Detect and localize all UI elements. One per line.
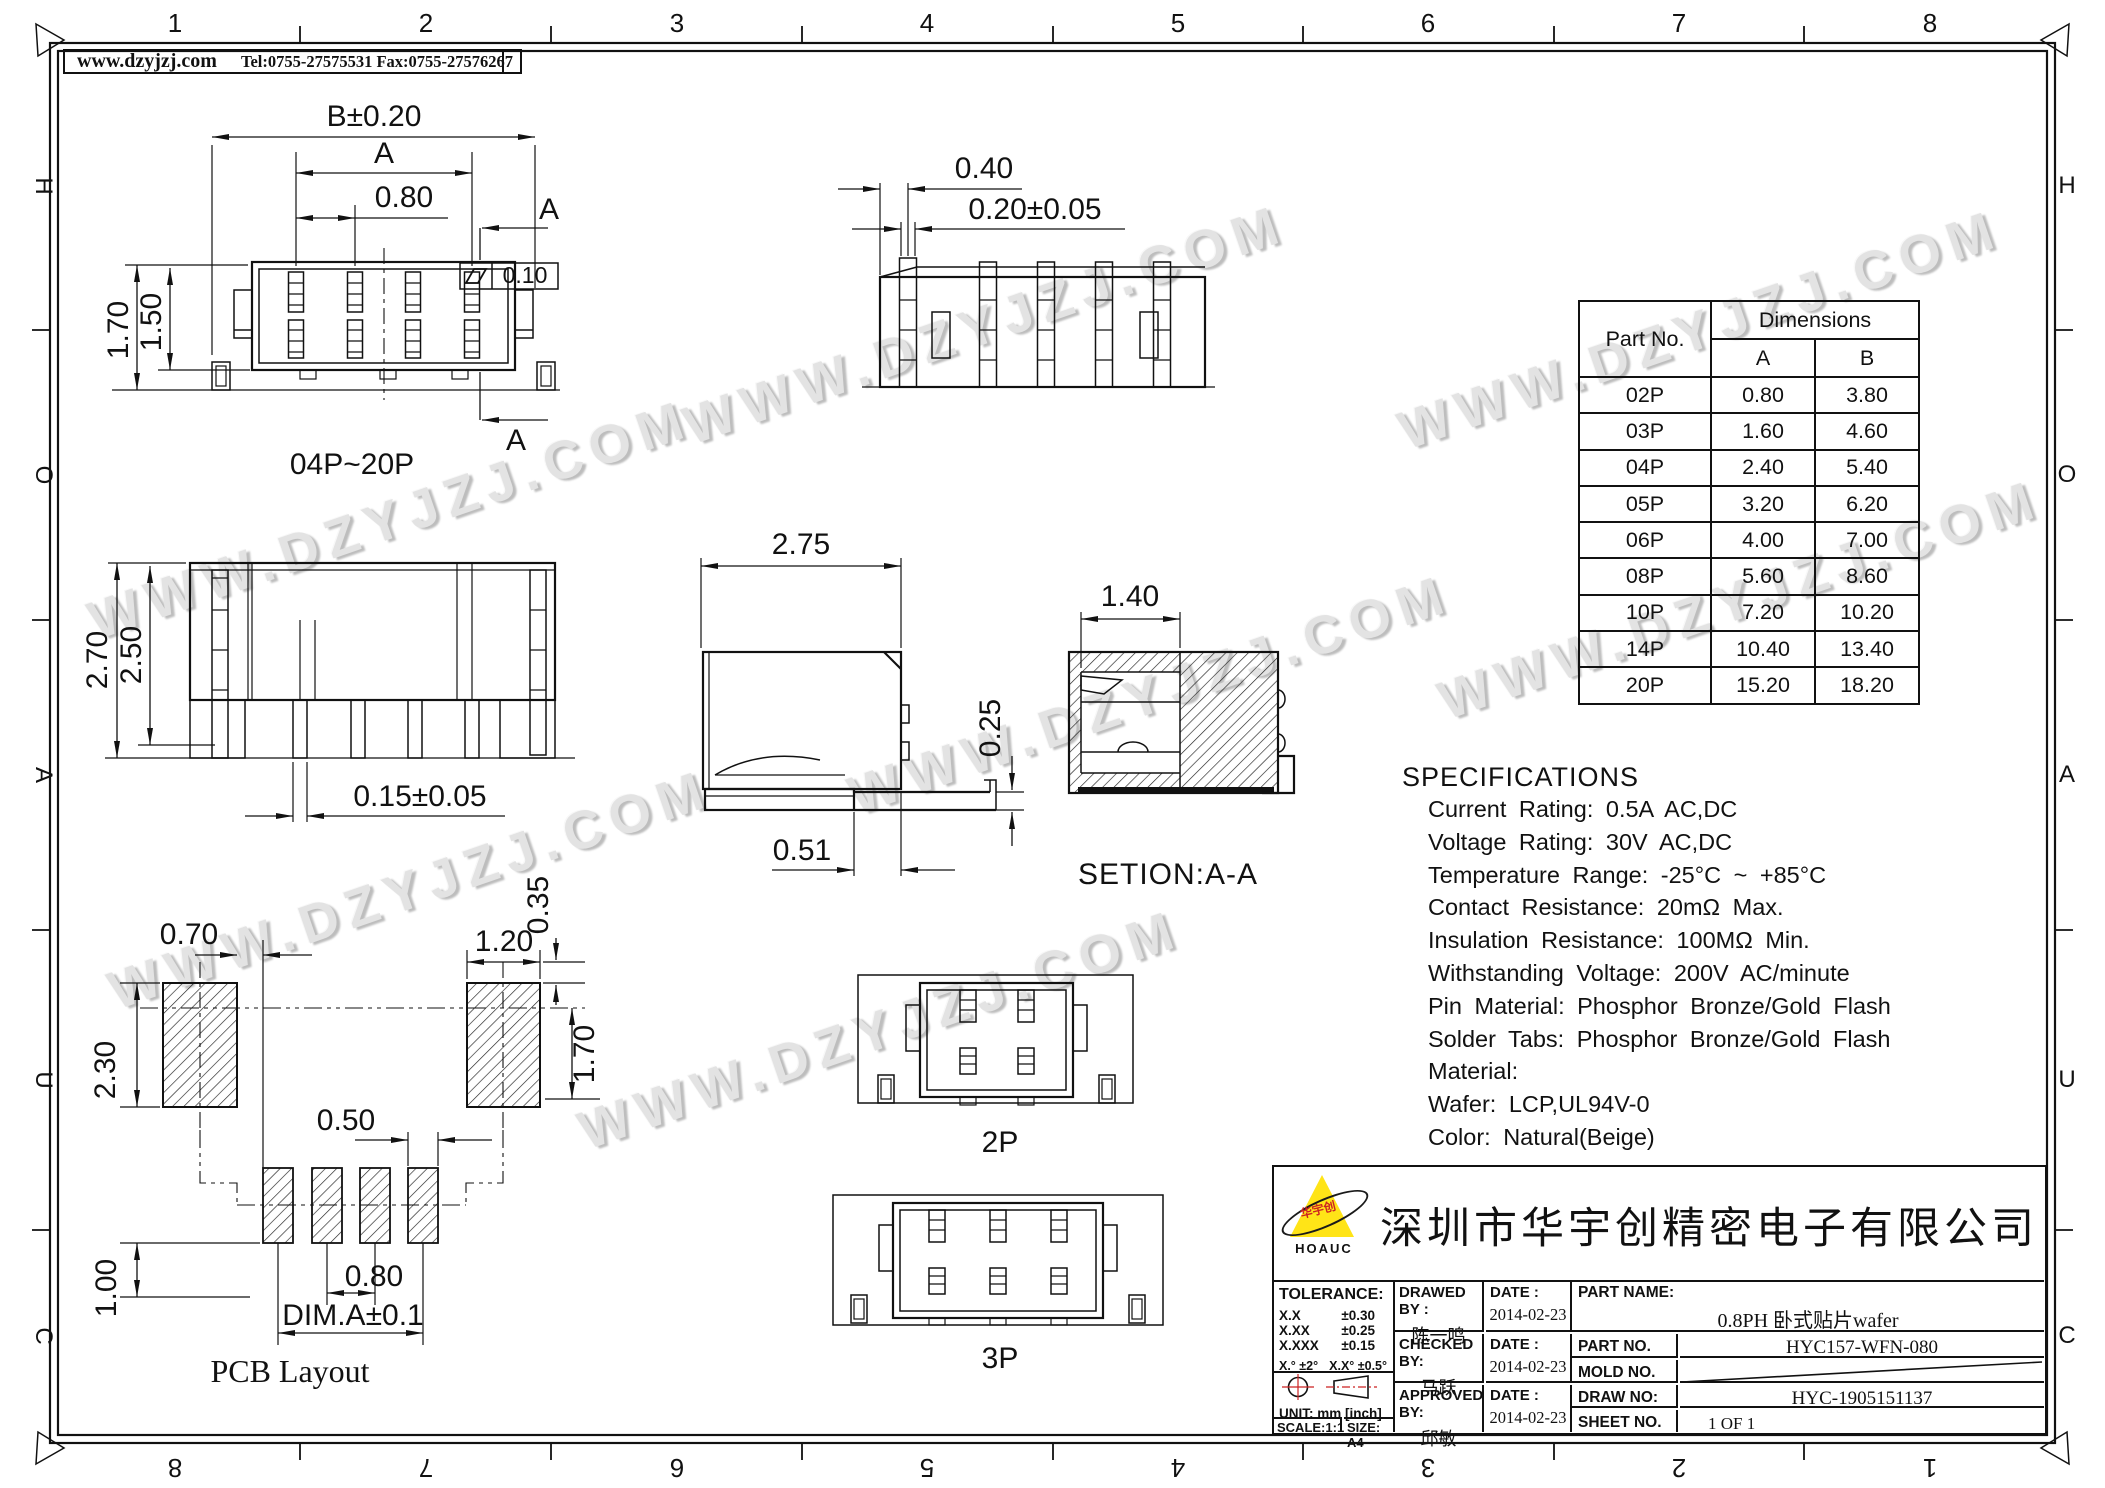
part-no: 08P: [1579, 558, 1711, 594]
table-row: 10P7.2010.20: [1579, 595, 1919, 631]
sheet-no-value: 1 OF 1: [1708, 1414, 1755, 1433]
dim-a: 4.00: [1711, 522, 1815, 558]
dim-label-1-20: 1.20: [475, 925, 533, 958]
table-row: 08P5.608.60: [1579, 558, 1919, 594]
spec-line: Voltage Rating: 30V AC,DC: [1402, 826, 2062, 859]
table-header-b: B: [1815, 339, 1919, 377]
drawing-sheet: WWW.DZYJZJ.COM WWW.DZYJZJ.COM WWW.DZYJZJ…: [0, 0, 2105, 1488]
watermark: WWW.DZYJZJ.COM: [841, 563, 1460, 828]
dim-label-1-70: 1.70: [568, 1025, 601, 1083]
title-block: 华宇创 HOAUC 深圳市华宇创精密电子有限公司 TOLERANCE: X.X …: [1272, 1165, 2047, 1435]
dim-a: 1.60: [1711, 413, 1815, 449]
tolerance-cell: TOLERANCE: X.X ±0.30 X.XX ±0.25 X.XXX ±0…: [1274, 1282, 1395, 1371]
part-no: 05P: [1579, 486, 1711, 522]
part-no: 03P: [1579, 413, 1711, 449]
part-no-label: PART NO.: [1578, 1338, 1651, 1355]
dim-label-2-75: 2.75: [772, 528, 830, 561]
tol-label: X.XX: [1279, 1323, 1310, 1338]
spec-line: Color: Natural(Beige): [1402, 1121, 2062, 1154]
part-no: 04P: [1579, 450, 1711, 486]
spec-line: Insulation Resistance: 100MΩ Min.: [1402, 924, 2062, 957]
ruler-bottom-5: 5: [907, 1452, 947, 1483]
ruler-bottom-6: 6: [657, 1452, 697, 1483]
dim-b: 13.40: [1815, 631, 1919, 667]
dim-label-tip-tol: 0.20±0.05: [968, 193, 1101, 226]
table-header-dimensions: Dimensions: [1711, 301, 1919, 339]
dim-label-1-40: 1.40: [1101, 580, 1159, 613]
part-no: 06P: [1579, 522, 1711, 558]
table-header-part: Part No.: [1579, 301, 1711, 377]
dim-label-a: A: [374, 137, 394, 170]
draw-no-label-cell: DRAW NO:: [1572, 1385, 1678, 1408]
checked-by-cell: CHECKED BY: 马跃: [1395, 1334, 1484, 1383]
dim-label-tip: 0.40: [955, 152, 1013, 185]
specifications: SPECIFICATIONS Current Rating: 0.5A AC,D…: [1402, 762, 2062, 1154]
ruler-left-u: U: [29, 1065, 57, 1095]
ruler-left-h: H: [29, 171, 57, 201]
spec-line: Withstanding Voltage: 200V AC/minute: [1402, 957, 2062, 990]
front-pins: [289, 272, 480, 358]
pcb-dimensions: [120, 938, 600, 1345]
table-row: 03P1.604.60: [1579, 413, 1919, 449]
dim-label-2-30: 2.30: [89, 1041, 122, 1099]
front-dimensions: [125, 137, 548, 420]
draw-no-label: DRAW NO:: [1578, 1389, 1658, 1406]
part-no-value-cell: HYC157-WFN-080: [1680, 1334, 2044, 1358]
p3-pins: [929, 1210, 1067, 1294]
table-row: 05P3.206.20: [1579, 486, 1919, 522]
checked-date: 2014-02-23: [1486, 1357, 1570, 1377]
part-name-cell: PART NAME: 0.8PH 卧式贴片wafer: [1572, 1282, 2044, 1332]
checked-by-label: CHECKED BY:: [1395, 1334, 1482, 1370]
drawed-date: 2014-02-23: [1486, 1305, 1570, 1325]
front-legs: [212, 362, 555, 390]
section-view-label: SETION:A-A: [1078, 858, 1258, 891]
ruler-left-c: C: [29, 1321, 57, 1351]
company-logo: 华宇创 HOAUC: [1284, 1173, 1364, 1279]
side-feet-pins: [190, 700, 555, 758]
dim-label-1-00: 1.00: [90, 1259, 123, 1317]
company-row: 华宇创 HOAUC 深圳市华宇创精密电子有限公司: [1274, 1167, 2044, 1282]
dim-b: 7.00: [1815, 522, 1919, 558]
scale-label: SCALE:1:1: [1277, 1420, 1344, 1435]
p3-label: 3P: [982, 1342, 1019, 1375]
website-text: www.dzyjzj.com: [77, 50, 217, 73]
ruler-bottom-7: 7: [406, 1452, 446, 1483]
ruler-right-o: O: [2052, 461, 2082, 489]
drawed-by-cell: DRAWED BY : 陈一鸣: [1395, 1282, 1484, 1332]
dim-label-h-body: 1.50: [135, 293, 168, 351]
size-label: SIZE: A4: [1347, 1420, 1380, 1450]
spec-line: Current Rating: 0.5A AC,DC: [1402, 793, 2062, 826]
drawed-by-label: DRAWED BY :: [1395, 1282, 1482, 1318]
part-no-label-cell: PART NO.: [1572, 1334, 1678, 1358]
ruler-top-4: 4: [907, 8, 947, 39]
draw-no-value: HYC-1905151137: [1792, 1388, 1933, 1409]
mold-no-value-cell: [1680, 1360, 2044, 1383]
spec-line: Solder Tabs: Phosphor Bronze/Gold Flash: [1402, 1023, 2062, 1056]
checked-date-cell: DATE : 2014-02-23: [1486, 1334, 1572, 1383]
ruler-top-2: 2: [406, 8, 446, 39]
table-row: 02P0.803.80: [1579, 377, 1919, 413]
scale-cell: SCALE:1:1: [1274, 1417, 1342, 1432]
specs-title: SPECIFICATIONS: [1402, 762, 2062, 793]
sheet-no-value-cell: 1 OF 1: [1680, 1410, 2044, 1432]
approved-date-cell: DATE : 2014-02-23: [1486, 1385, 1572, 1432]
p2-label: 2P: [982, 1126, 1019, 1159]
part-name-label: PART NAME:: [1572, 1282, 2044, 1302]
dim-label-dim-a: DIM.A±0.1: [282, 1299, 424, 1332]
ruler-bottom-2: 2: [1659, 1452, 1699, 1483]
ruler-bottom-8: 8: [155, 1452, 195, 1483]
dim-label-b: B±0.20: [327, 100, 422, 133]
part-no: 20P: [1579, 667, 1711, 703]
dimensions-table: Part No. Dimensions A B 02P0.803.80 03P1…: [1578, 300, 1920, 705]
flatness-value: 0.10: [503, 262, 548, 288]
header-box-endcell: [502, 51, 520, 72]
sheet-no-label: SHEET NO.: [1578, 1414, 1662, 1431]
pcb-pad: [467, 983, 540, 1107]
dim-b: 8.60: [1815, 558, 1919, 594]
ruler-top-6: 6: [1408, 8, 1448, 39]
ruler-bottom-4: 4: [1158, 1452, 1198, 1483]
pcb-centerlines: [140, 962, 585, 1205]
projection-symbols: [1274, 1373, 1393, 1401]
mold-no-diagonal: [1680, 1360, 2044, 1383]
part-no: 10P: [1579, 595, 1711, 631]
header-contact-box: www.dzyjzj.com Tel:0755-27575531 Fax:075…: [63, 49, 522, 74]
ruler-top-8: 8: [1910, 8, 1950, 39]
dim-a: 5.60: [1711, 558, 1815, 594]
ruler-top-3: 3: [657, 8, 697, 39]
dim-b: 6.20: [1815, 486, 1919, 522]
table-row: 06P4.007.00: [1579, 522, 1919, 558]
approved-by-name: 邱敏: [1395, 1425, 1482, 1451]
pcb-small-pad: [360, 1168, 390, 1243]
dim-label-0-80: 0.80: [345, 1260, 403, 1293]
flatness-symbol-icon: [466, 269, 486, 283]
table-row: 04P2.405.40: [1579, 450, 1919, 486]
dim-a: 15.20: [1711, 667, 1815, 703]
spec-line: Pin Material: Phosphor Bronze/Gold Flash: [1402, 990, 2062, 1023]
spec-line: Wafer: LCP,UL94V-0: [1402, 1088, 2062, 1121]
drawed-date-cell: DATE : 2014-02-23: [1486, 1282, 1572, 1332]
ruler-bottom-3: 3: [1408, 1452, 1448, 1483]
ruler-top-5: 5: [1158, 8, 1198, 39]
ruler-top-1: 1: [155, 8, 195, 39]
dim-b: 3.80: [1815, 377, 1919, 413]
part-no-value: HYC157-WFN-080: [1786, 1337, 1938, 1358]
part-no: 14P: [1579, 631, 1711, 667]
front-flanges: [234, 290, 533, 338]
dim-a: 0.80: [1711, 377, 1815, 413]
spec-line: Temperature Range: -25°C ~ +85°C: [1402, 859, 2062, 892]
mold-no-label-cell: MOLD NO.: [1572, 1360, 1678, 1383]
dim-label-0-50: 0.50: [317, 1104, 375, 1137]
date-label: DATE :: [1486, 1385, 1570, 1404]
watermark: WWW.DZYJZJ.COM: [81, 388, 700, 653]
dim-b: 18.20: [1815, 667, 1919, 703]
dim-a: 10.40: [1711, 631, 1815, 667]
sheet-no-label-cell: SHEET NO.: [1572, 1410, 1678, 1432]
watermark: WWW.DZYJZJ.COM: [676, 193, 1295, 458]
dim-label-0-35: 0.35: [522, 876, 555, 934]
size-cell: SIZE: A4: [1344, 1417, 1395, 1432]
ruler-bottom-1: 1: [1910, 1452, 1950, 1483]
spec-line: Contact Resistance: 20mΩ Max.: [1402, 891, 2062, 924]
flatness-callout: 0.10: [460, 262, 558, 289]
dim-b: 10.20: [1815, 595, 1919, 631]
pcb-layout-label: PCB Layout: [210, 1353, 369, 1389]
dim-label-0-51: 0.51: [773, 834, 831, 867]
dim-a: 7.20: [1711, 595, 1815, 631]
pcb-small-pad: [408, 1168, 438, 1243]
watermark: WWW.DZYJZJ.COM: [571, 898, 1190, 1163]
dim-b: 4.60: [1815, 413, 1919, 449]
front-view: B±0.20 A 0.80 1.70 1.50 A A 0.10 04P~20P: [102, 100, 560, 481]
ruler-left-o: O: [29, 460, 57, 490]
side-nails: [212, 570, 546, 758]
dim-label-pin: 0.15±0.05: [353, 780, 486, 813]
dim-a: 3.20: [1711, 486, 1815, 522]
projection-cell: UNIT: mm [inch]: [1274, 1371, 1395, 1417]
dim-a: 2.40: [1711, 450, 1815, 486]
spec-line: Material:: [1402, 1055, 2062, 1088]
watermark: WWW.DZYJZJ.COM: [101, 758, 720, 1023]
ruler-top-7: 7: [1659, 8, 1699, 39]
profile-dimensions: [701, 558, 1024, 876]
part-name-value: 0.8PH 卧式贴片wafer: [1572, 1304, 2044, 1333]
contact-text: Tel:0755-27575531 Fax:0755-27576267: [241, 52, 513, 72]
dim-b: 5.40: [1815, 450, 1919, 486]
ruler-right-h: H: [2052, 172, 2082, 200]
date-label: DATE :: [1486, 1334, 1570, 1353]
front-view-label: 04P~20P: [290, 448, 414, 481]
section-bottom-plate: [1078, 787, 1274, 793]
company-name: 深圳市华宇创精密电子有限公司: [1379, 1167, 2039, 1282]
dim-label-h-total: 1.70: [102, 301, 135, 359]
tolerance-title: TOLERANCE:: [1279, 1286, 1388, 1304]
tol-value: ±0.30: [1341, 1308, 1375, 1323]
section-mark-top: A: [539, 193, 559, 226]
approved-by-label: APPROVED BY:: [1395, 1385, 1482, 1421]
pcb-small-pad: [312, 1168, 342, 1243]
table-row: 20P15.2018.20: [1579, 667, 1919, 703]
pcb-small-pad: [263, 1168, 293, 1243]
tol-label: X.X: [1279, 1308, 1301, 1323]
date-label: DATE :: [1486, 1282, 1570, 1301]
table-header-a: A: [1711, 339, 1815, 377]
approved-date: 2014-02-23: [1486, 1408, 1570, 1428]
part-no: 02P: [1579, 377, 1711, 413]
table-row: 14P10.4013.40: [1579, 631, 1919, 667]
approved-by-cell: APPROVED BY: 邱敏: [1395, 1385, 1484, 1432]
mold-no-label: MOLD NO.: [1578, 1364, 1656, 1381]
draw-no-value-cell: HYC-1905151137: [1680, 1385, 2044, 1408]
view-3p: 3P: [833, 1195, 1163, 1375]
ruler-left-a: A: [29, 760, 57, 790]
tol-value: ±0.15: [1341, 1338, 1375, 1353]
logo-brand-text: HOAUC: [1284, 1241, 1364, 1256]
dim-label-pitch: 0.80: [375, 181, 433, 214]
tol-label: X.XXX: [1279, 1338, 1319, 1353]
tol-value: ±0.25: [1341, 1323, 1375, 1338]
ruler-right-c: C: [2052, 1322, 2082, 1350]
